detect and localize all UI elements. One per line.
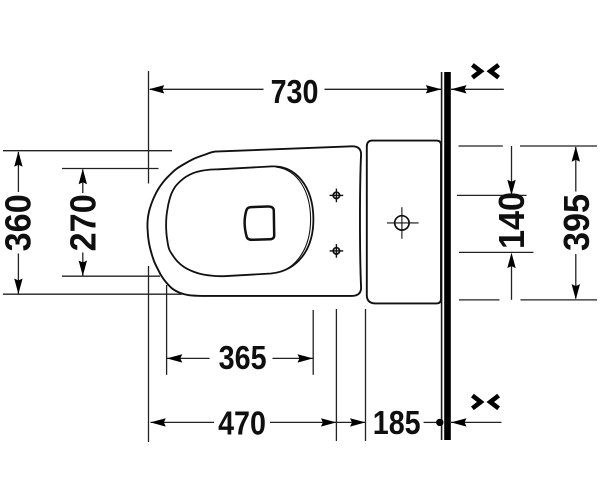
svg-text:185: 185 <box>373 404 421 441</box>
svg-text:730: 730 <box>271 73 319 110</box>
svg-text:365: 365 <box>219 339 267 376</box>
svg-text:270: 270 <box>64 194 104 251</box>
svg-text:395: 395 <box>557 194 597 251</box>
svg-text:360: 360 <box>0 194 39 251</box>
svg-text:140: 140 <box>492 192 532 249</box>
svg-text:470: 470 <box>218 405 266 442</box>
